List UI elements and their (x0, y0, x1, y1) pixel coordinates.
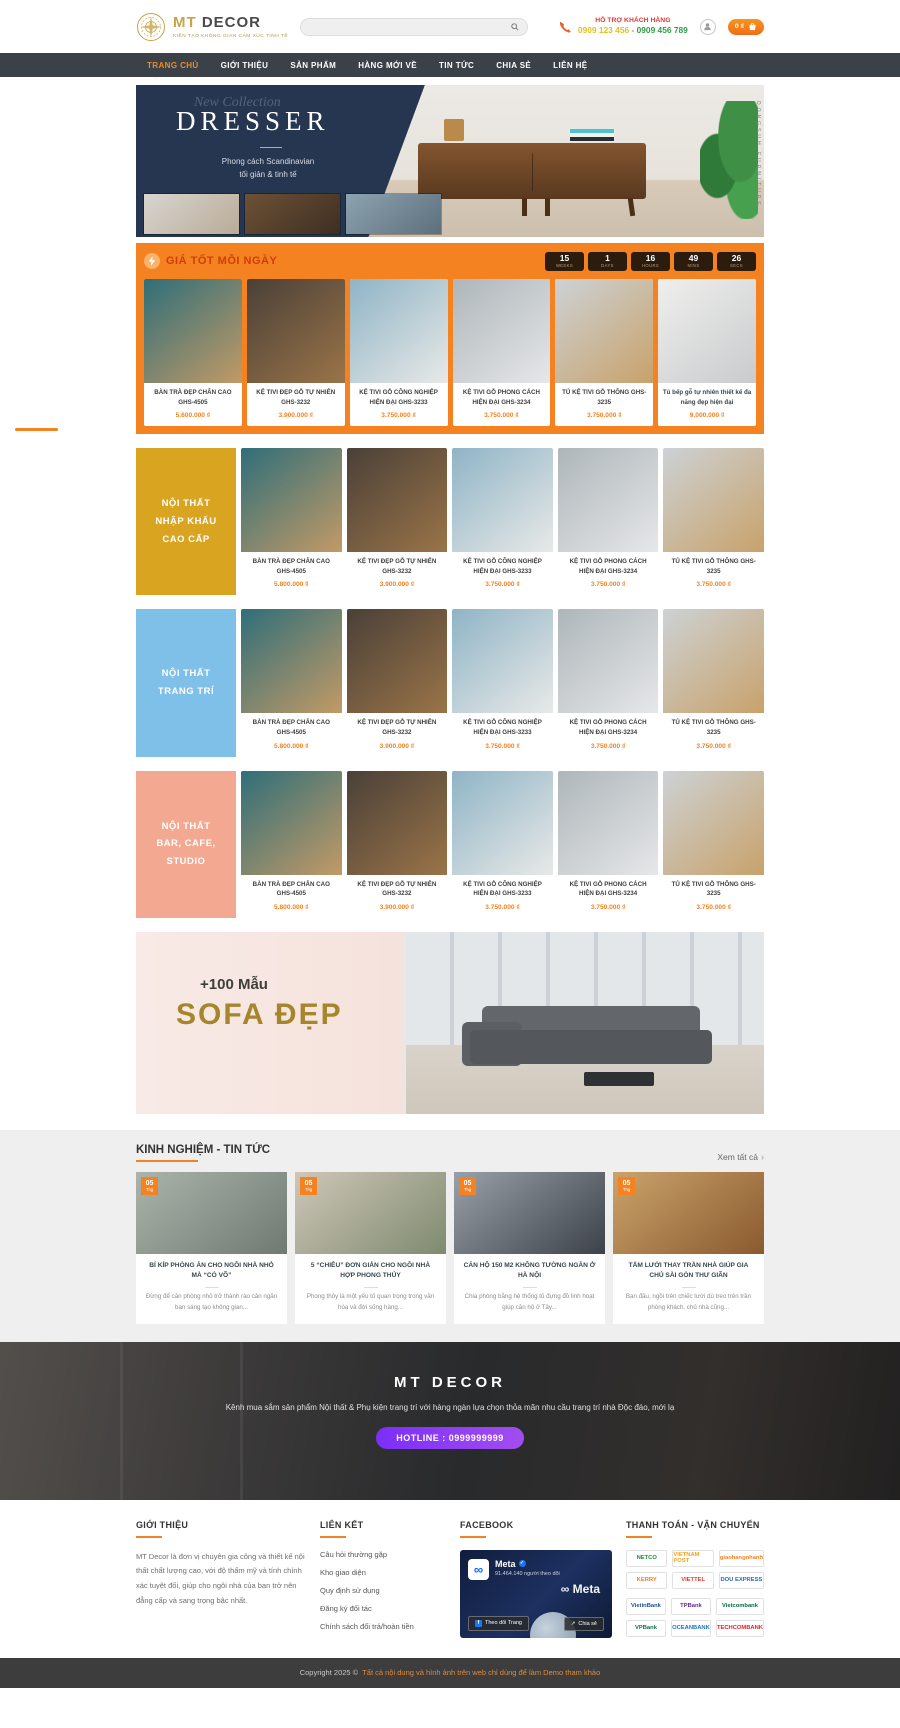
category-banner[interactable]: NỘI THẤTTRANG TRÍ (136, 609, 236, 756)
nav-item[interactable]: SẢN PHẨM (279, 53, 347, 77)
countdown-value: 49 (689, 254, 698, 263)
copyright-bar: Copyright 2025 © Tất cả nội dung và hình… (0, 1658, 900, 1688)
countdown-value: 1 (605, 254, 610, 263)
footer-links: Câu hỏi thường gặpKho giao diệnQuy định … (320, 1550, 446, 1631)
cart-bag-icon (748, 22, 757, 31)
product-name: KỆ TIVI GỖ CÔNG NGHIỆP HIỆN ĐẠI GHS-3233 (452, 552, 553, 576)
share-arrow-icon: ↗ (571, 1621, 576, 1627)
hero-plant-decor (700, 101, 758, 219)
product-price: 5.800.000 ₫ (241, 576, 342, 595)
logo-mt: MT (173, 14, 197, 31)
shipping-brand-logo: giaohangnhanh (719, 1550, 764, 1567)
bank-brand-logo: TPBank (671, 1598, 711, 1615)
countdown-box: 1 DAYS (588, 252, 627, 271)
footer-facebook-heading: FACEBOOK (460, 1520, 612, 1530)
nav-item[interactable]: LIÊN HỆ (542, 53, 598, 77)
product-price: 3.750.000 ₫ (663, 576, 764, 595)
product-card[interactable]: TỦ KỆ TIVI GỖ THÔNG GHS-32353.750.000 ₫ (555, 279, 653, 426)
news-image: 05 Thg (136, 1172, 287, 1254)
logo-decor: DECOR (202, 14, 261, 31)
product-name: TỦ KỆ TIVI GỖ THÔNG GHS-3235 (663, 875, 764, 899)
view-all-link[interactable]: Xem tất cả › (717, 1152, 764, 1162)
shipping-logos: NETCOVIETNAM POSTgiaohangnhanhKERRYVIETT… (626, 1550, 764, 1589)
search-bar[interactable] (300, 18, 528, 36)
meta-watermark: ∞ Meta (561, 1582, 600, 1596)
product-name: KỆ TIVI ĐẸP GỖ TỰ NHIÊN GHS-3232 (347, 875, 448, 899)
hero-thumbnails (144, 194, 441, 234)
product-price: 3.750.000 ₫ (452, 899, 553, 918)
countdown-label: SECS (730, 264, 743, 268)
support-hotline[interactable]: HỖ TRỢ KHÁCH HÀNG 0909 123 456 - 0909 45… (558, 16, 688, 37)
deal-title-text: GIÁ TỐT MỖI NGÀY (166, 255, 277, 267)
site-header: MT DECOR KIẾN TẠO KHÔNG GIAN CẢM XÚC TIN… (0, 0, 900, 53)
product-name: KỆ TIVI GỖ PHONG CÁCH HIỆN ĐẠI GHS-3234 (453, 383, 551, 407)
countdown-label: DAYS (601, 264, 614, 268)
phone-separator: - (631, 25, 634, 35)
brand-banner-title: MT DECOR (0, 1374, 900, 1391)
product-name: KỆ TIVI GỖ PHONG CÁCH HIỆN ĐẠI GHS-3234 (558, 552, 659, 576)
category-products: BÀN TRÀ ĐẸP CHÂN CAO GHS-45055.800.000 ₫… (241, 448, 764, 595)
hero-divider (260, 147, 282, 148)
countdown-label: MINS (687, 264, 699, 268)
cart-amount: 0 ₫ (735, 23, 744, 30)
shipping-brand-logo: VIETTEL (672, 1572, 713, 1589)
phone-icon (558, 20, 572, 34)
bank-brand-logo: Vietcombank (716, 1598, 764, 1615)
brand-banner-description: Kênh mua sắm sản phẩm Nội thất & Phụ kiệ… (225, 1401, 675, 1416)
sofa-shape-seat (470, 1030, 712, 1064)
product-price: 5.600.000 ₫ (144, 407, 242, 426)
news-excerpt: Đừng để căn phòng nhỏ trở thành rào cản … (136, 1292, 287, 1324)
product-price: 3.900.000 ₫ (347, 738, 448, 757)
chevron-right-icon: › (761, 1152, 764, 1162)
product-name: KỆ TIVI GỖ CÔNG NGHIỆP HIỆN ĐẠI GHS-3233 (452, 713, 553, 737)
countdown-box: 15 WEEKS (545, 252, 584, 271)
product-card[interactable]: KỆ TIVI GỖ PHONG CÁCH HIỆN ĐẠI GHS-32343… (558, 771, 659, 918)
product-card[interactable]: KỆ TIVI ĐẸP GỖ TỰ NHIÊN GHS-32323.900.00… (247, 279, 345, 426)
search-icon[interactable] (511, 23, 519, 31)
category-banner[interactable]: NỘI THẤTBAR, CAFE,STUDIO (136, 771, 236, 918)
product-card[interactable]: BÀN TRÀ ĐẸP CHÂN CAO GHS-45055.600.000 ₫ (144, 279, 242, 426)
bank-brand-logo: TECHCOMBANK (716, 1620, 764, 1637)
product-image (144, 279, 242, 383)
footer-heading-underline (136, 1536, 162, 1538)
hotline-button[interactable]: HOTLINE : 0999999999 (376, 1427, 524, 1449)
product-image (453, 279, 551, 383)
footer-heading-underline (460, 1536, 486, 1538)
news-title[interactable]: CĂN HỘ 150 M2 KHÔNG TƯỜNG NGĂN Ở HÀ NỘI (454, 1254, 605, 1282)
account-button[interactable] (700, 19, 716, 35)
hero-vertical-text: DONGSUH FURNITURE (755, 101, 761, 208)
product-price: 5.800.000 ₫ (241, 738, 342, 757)
product-price: 3.750.000 ₫ (350, 407, 448, 426)
product-card[interactable]: Tủ bếp gỗ tự nhiên thiết kế đa năng đẹp … (658, 279, 756, 426)
product-image (558, 609, 659, 713)
deal-title: GIÁ TỐT MỖI NGÀY (144, 253, 277, 269)
category-sections: NỘI THẤTNHẬP KHẨUCAO CẤPBÀN TRÀ ĐẸP CHÂN… (136, 448, 764, 918)
hero-pot-decor (444, 119, 464, 141)
footer-payment-heading: THANH TOÁN - VẬN CHUYỂN (626, 1520, 764, 1530)
product-image (658, 279, 756, 383)
footer-link[interactable]: Kho giao diện (320, 1568, 446, 1577)
nav-item[interactable]: HÀNG MỚI VỀ (347, 53, 428, 77)
news-image: 05 Thg (295, 1172, 446, 1254)
news-card[interactable]: 05 Thg TẤM LƯỚI THAY TRẦN NHÀ GIÚP GIA C… (613, 1172, 764, 1324)
product-image (241, 448, 342, 552)
product-image (241, 609, 342, 713)
hero-subtitle: Phong cách Scandinavian tối giản & tinh … (168, 155, 368, 181)
sofa-promo-banner[interactable]: +100 Mẫu SOFA ĐẸP (136, 932, 764, 1114)
footer-link[interactable]: Đăng ký đối tác (320, 1604, 446, 1613)
category-section: NỘI THẤTBAR, CAFE,STUDIOBÀN TRÀ ĐẸP CHÂN… (136, 771, 764, 918)
product-card[interactable]: KỆ TIVI ĐẸP GỖ TỰ NHIÊN GHS-32323.900.00… (347, 771, 448, 918)
product-price: 3.750.000 ₫ (555, 407, 653, 426)
hero-subtitle-line2: tối giản & tinh tế (168, 168, 368, 181)
footer-link[interactable]: Câu hỏi thường gặp (320, 1550, 446, 1559)
product-price: 3.750.000 ₫ (452, 576, 553, 595)
news-card[interactable]: 05 Thg 5 “CHIÊU” ĐƠN GIẢN CHO NGÔI NHÀ H… (295, 1172, 446, 1324)
logo-tagline: KIẾN TẠO KHÔNG GIAN CẢM XÚC TINH TẾ (173, 34, 288, 39)
product-name: BÀN TRÀ ĐẸP CHÂN CAO GHS-4505 (241, 552, 342, 576)
sofa-coffee-table (584, 1072, 654, 1086)
hero-dresser-photo (418, 143, 646, 199)
product-price: 3.750.000 ₫ (558, 899, 659, 918)
category-section: NỘI THẤTTRANG TRÍBÀN TRÀ ĐẸP CHÂN CAO GH… (136, 609, 764, 756)
deal-countdown: 15 WEEKS 1 DAYS 16 HOURS 49 MINS 26 SECS (545, 252, 756, 271)
nav-item[interactable]: CHIA SẺ (485, 53, 542, 77)
product-image (347, 609, 448, 713)
countdown-value: 16 (646, 254, 655, 263)
product-name: Tủ bếp gỗ tự nhiên thiết kế đa năng đẹp … (658, 383, 756, 407)
shipping-brand-logo: VIETNAM POST (672, 1550, 713, 1567)
bank-brand-logo: VPBank (626, 1620, 666, 1637)
meta-logo-icon: ∞ (468, 1559, 489, 1580)
news-date-badge: 05 Thg (141, 1177, 158, 1195)
news-date-day: 05 (464, 1180, 472, 1187)
deal-products: BÀN TRÀ ĐẸP CHÂN CAO GHS-45055.600.000 ₫… (144, 279, 756, 426)
countdown-box: 26 SECS (717, 252, 756, 271)
slider-accent-dash (15, 428, 58, 431)
nav-item[interactable]: TIN TỨC (428, 53, 485, 77)
site-logo[interactable]: MT DECOR KIẾN TẠO KHÔNG GIAN CẢM XÚC TIN… (136, 12, 288, 42)
user-icon (703, 22, 712, 31)
footer-link[interactable]: Chính sách đổi trả/hoàn tiền (320, 1622, 446, 1631)
news-image: 05 Thg (454, 1172, 605, 1254)
news-date-day: 05 (623, 1180, 631, 1187)
footer-link[interactable]: Quy định sử dụng (320, 1586, 446, 1595)
category-section: NỘI THẤTNHẬP KHẨUCAO CẤPBÀN TRÀ ĐẸP CHÂN… (136, 448, 764, 595)
product-price: 3.750.000 ₫ (452, 738, 553, 757)
product-card[interactable]: KỆ TIVI GỖ CÔNG NGHIỆP HIỆN ĐẠI GHS-3233… (452, 609, 553, 756)
product-image (347, 771, 448, 875)
shipping-brand-logo: DOU EXPRESS (719, 1572, 764, 1589)
news-grid: 05 Thg BÍ KÍP PHÒNG ĂN CHO NGÔI NHÀ NHỎ … (136, 1172, 764, 1324)
copyright-prefix: Copyright 2025 © (300, 1668, 358, 1677)
logo-text: MT DECOR KIẾN TẠO KHÔNG GIAN CẢM XÚC TIN… (173, 14, 288, 39)
hero-books-decor (570, 129, 614, 141)
product-image (452, 771, 553, 875)
product-card[interactable]: KỆ TIVI GỖ CÔNG NGHIỆP HIỆN ĐẠI GHS-3233… (452, 771, 553, 918)
news-card[interactable]: 05 Thg CĂN HỘ 150 M2 KHÔNG TƯỜNG NGĂN Ở … (454, 1172, 605, 1324)
news-excerpt: Chia phòng bằng hệ thống tủ đựng đồ linh… (454, 1292, 605, 1324)
news-section: KINH NGHIỆM - TIN TỨC Xem tất cả › 05 Th… (0, 1130, 900, 1342)
bank-logos: VietinBankTPBankVietcombankVPBankOCEANBA… (626, 1598, 764, 1637)
product-name: KỆ TIVI ĐẸP GỖ TỰ NHIÊN GHS-3232 (347, 713, 448, 737)
news-excerpt: Ban đầu, ngồi trên chiếc lưới dù treo tr… (613, 1292, 764, 1324)
footer-about-text: MT Decor là đơn vị chuyên gia công và th… (136, 1550, 306, 1609)
product-image (452, 448, 553, 552)
share-label: Chia sẻ (578, 1621, 597, 1627)
product-name: KỆ TIVI GỖ CÔNG NGHIỆP HIỆN ĐẠI GHS-3233 (350, 383, 448, 407)
product-card[interactable]: KỆ TIVI GỖ CÔNG NGHIỆP HIỆN ĐẠI GHS-3233… (452, 448, 553, 595)
footer-heading-underline (320, 1536, 346, 1538)
daily-deal-section: GIÁ TỐT MỖI NGÀY 15 WEEKS 1 DAYS 16 HOUR… (136, 243, 764, 434)
countdown-label: HOURS (642, 264, 659, 268)
footer-links-heading: LIÊN KẾT (320, 1520, 446, 1530)
hero-thumbnail[interactable] (245, 194, 340, 234)
hero-title: DRESSER (176, 106, 330, 137)
view-all-label: Xem tất cả (717, 1152, 758, 1162)
news-date-badge: 05 Thg (459, 1177, 476, 1195)
hero-thumbnail[interactable] (346, 194, 441, 234)
countdown-box: 16 HOURS (631, 252, 670, 271)
category-title-line: NỘI THẤT (162, 665, 211, 683)
countdown-box: 49 MINS (674, 252, 713, 271)
news-card[interactable]: 05 Thg BÍ KÍP PHÒNG ĂN CHO NGÔI NHÀ NHỎ … (136, 1172, 287, 1324)
product-image (241, 771, 342, 875)
category-title-line: TRANG TRÍ (158, 683, 214, 701)
cart-button[interactable]: 0 ₫ (728, 19, 764, 35)
search-input[interactable] (309, 23, 505, 30)
brand-banner: MT DECOR Kênh mua sắm sản phẩm Nội thất … (0, 1342, 900, 1500)
news-date-day: 05 (146, 1180, 154, 1187)
support-phone-2[interactable]: 0909 456 789 (637, 25, 688, 35)
facebook-page-widget[interactable]: ∞ Meta✓ 91.464.140 người theo dõi ∞ Meta… (460, 1550, 612, 1638)
news-date-day: 05 (305, 1180, 313, 1187)
product-name: TỦ KỆ TIVI GỖ THÔNG GHS-3235 (663, 552, 764, 576)
product-price: 3.900.000 ₫ (347, 899, 448, 918)
hero-subtitle-line1: Phong cách Scandinavian (168, 155, 368, 168)
product-image (558, 771, 659, 875)
news-divider (205, 1287, 219, 1288)
category-title-line: CAO CẤP (162, 531, 209, 549)
product-card[interactable]: TỦ KỆ TIVI GỖ THÔNG GHS-32353.750.000 ₫ (663, 771, 764, 918)
product-card[interactable]: KỆ TIVI GỖ PHONG CÁCH HIỆN ĐẠI GHS-32343… (558, 448, 659, 595)
product-card[interactable]: KỆ TIVI GỖ PHONG CÁCH HIỆN ĐẠI GHS-32343… (558, 609, 659, 756)
product-image (247, 279, 345, 383)
hero-banner[interactable]: New Collection DRESSER Phong cách Scandi… (136, 85, 764, 237)
product-image (452, 609, 553, 713)
bank-brand-logo: OCEANBANK (671, 1620, 711, 1637)
news-divider (682, 1287, 696, 1288)
countdown-value: 26 (732, 254, 741, 263)
news-excerpt: Phong thủy là một yếu tố quan trọng tron… (295, 1292, 446, 1324)
category-products: BÀN TRÀ ĐẸP CHÂN CAO GHS-45055.800.000 ₫… (241, 609, 764, 756)
product-price: 3.750.000 ₫ (663, 738, 764, 757)
product-price: 3.900.000 ₫ (247, 407, 345, 426)
copyright-text: Tất cả nội dung và hình ảnh trên web chỉ… (362, 1668, 600, 1677)
product-image (663, 771, 764, 875)
news-divider (364, 1287, 378, 1288)
news-divider (523, 1287, 537, 1288)
news-date-badge: 05 Thg (618, 1177, 635, 1195)
facebook-followers: 91.464.140 người theo dõi (495, 1571, 560, 1577)
product-card[interactable]: KỆ TIVI GỖ CÔNG NGHIỆP HIỆN ĐẠI GHS-3233… (350, 279, 448, 426)
countdown-value: 15 (560, 254, 569, 263)
product-card[interactable]: TỦ KỆ TIVI GỖ THÔNG GHS-32353.750.000 ₫ (663, 448, 764, 595)
product-name: KỆ TIVI GỖ PHONG CÁCH HIỆN ĐẠI GHS-3234 (558, 875, 659, 899)
product-name: TỦ KỆ TIVI GỖ THÔNG GHS-3235 (555, 383, 653, 407)
category-products: BÀN TRÀ ĐẸP CHÂN CAO GHS-45055.800.000 ₫… (241, 771, 764, 918)
nav-item[interactable]: TRANG CHỦ (136, 53, 210, 77)
product-price: 5.800.000 ₫ (241, 899, 342, 918)
sofa-count-label: +100 Mẫu (200, 976, 268, 993)
product-card[interactable]: BÀN TRÀ ĐẸP CHÂN CAO GHS-45055.800.000 ₫ (241, 448, 342, 595)
category-title-line: STUDIO (167, 853, 206, 871)
product-image (558, 448, 659, 552)
nav-items: TRANG CHỦGIỚI THIỆUSẢN PHẨMHÀNG MỚI VỀTI… (136, 53, 764, 77)
news-date-month: Thg (464, 1188, 471, 1192)
product-name: BÀN TRÀ ĐẸP CHÂN CAO GHS-4505 (241, 713, 342, 737)
countdown-label: WEEKS (556, 264, 573, 268)
product-price: 3.750.000 ₫ (558, 738, 659, 757)
product-price: 3.750.000 ₫ (663, 899, 764, 918)
verified-badge-icon: ✓ (519, 1560, 526, 1567)
news-image: 05 Thg (613, 1172, 764, 1254)
category-title-line: NHẬP KHẨU (155, 513, 216, 531)
product-image (555, 279, 653, 383)
news-date-month: Thg (305, 1188, 312, 1192)
product-image (663, 609, 764, 713)
product-price: 9.000.000 ₫ (658, 407, 756, 426)
product-name: KỆ TIVI GỖ CÔNG NGHIỆP HIỆN ĐẠI GHS-3233 (452, 875, 553, 899)
product-name: BÀN TRÀ ĐẸP CHÂN CAO GHS-4505 (144, 383, 242, 407)
news-title[interactable]: 5 “CHIÊU” ĐƠN GIẢN CHO NGÔI NHÀ HỢP PHON… (295, 1254, 446, 1282)
site-footer: GIỚI THIỆU MT Decor là đơn vị chuyên gia… (0, 1500, 900, 1656)
main-navigation: TRANG CHỦGIỚI THIỆUSẢN PHẨMHÀNG MỚI VỀTI… (0, 53, 900, 77)
product-image (663, 448, 764, 552)
news-date-month: Thg (623, 1188, 630, 1192)
news-title[interactable]: TẤM LƯỚI THAY TRẦN NHÀ GIÚP GIA CHỦ SÀI … (613, 1254, 764, 1282)
product-name: KỆ TIVI ĐẸP GỖ TỰ NHIÊN GHS-3232 (247, 383, 345, 407)
product-image (350, 279, 448, 383)
facebook-page-name: Meta (495, 1559, 516, 1569)
news-date-badge: 05 Thg (300, 1177, 317, 1195)
product-card[interactable]: KỆ TIVI GỖ PHONG CÁCH HIỆN ĐẠI GHS-32343… (453, 279, 551, 426)
product-card[interactable]: KỆ TIVI ĐẸP GỖ TỰ NHIÊN GHS-32323.900.00… (347, 448, 448, 595)
lightning-bolt-icon (144, 253, 160, 269)
bank-brand-logo: VietinBank (626, 1598, 666, 1615)
product-card[interactable]: BÀN TRÀ ĐẸP CHÂN CAO GHS-45055.800.000 ₫ (241, 609, 342, 756)
product-card[interactable]: BÀN TRÀ ĐẸP CHÂN CAO GHS-45055.800.000 ₫ (241, 771, 342, 918)
product-name: KỆ TIVI ĐẸP GỖ TỰ NHIÊN GHS-3232 (347, 552, 448, 576)
facebook-f-icon: f (475, 1620, 482, 1627)
product-price: 3.900.000 ₫ (347, 576, 448, 595)
news-title[interactable]: BÍ KÍP PHÒNG ĂN CHO NGÔI NHÀ NHỎ MÀ “CÓ … (136, 1254, 287, 1282)
nav-item[interactable]: GIỚI THIỆU (210, 53, 280, 77)
product-image (347, 448, 448, 552)
category-title-line: NỘI THẤT (162, 495, 211, 513)
shipping-brand-logo: KERRY (626, 1572, 667, 1589)
product-card[interactable]: KỆ TIVI ĐẸP GỖ TỰ NHIÊN GHS-32323.900.00… (347, 609, 448, 756)
product-card[interactable]: TỦ KỆ TIVI GỖ THÔNG GHS-32353.750.000 ₫ (663, 609, 764, 756)
category-title-line: BAR, CAFE, (156, 835, 215, 853)
news-date-month: Thg (146, 1188, 153, 1192)
facebook-follow-button[interactable]: fTheo dõi Trang (468, 1616, 529, 1631)
news-section-title: KINH NGHIỆM - TIN TỨC (136, 1144, 270, 1162)
category-banner[interactable]: NỘI THẤTNHẬP KHẨUCAO CẤP (136, 448, 236, 595)
product-name: BÀN TRÀ ĐẸP CHÂN CAO GHS-4505 (241, 875, 342, 899)
footer-heading-underline (626, 1536, 652, 1538)
product-price: 3.750.000 ₫ (558, 576, 659, 595)
sofa-title: SOFA ĐẸP (176, 998, 343, 1032)
facebook-share-button[interactable]: ↗Chia sẻ (564, 1617, 604, 1631)
support-label: HỖ TRỢ KHÁCH HÀNG (578, 16, 688, 26)
product-price: 3.750.000 ₫ (453, 407, 551, 426)
logo-mandala-icon (136, 12, 166, 42)
product-name: TỦ KỆ TIVI GỖ THÔNG GHS-3235 (663, 713, 764, 737)
hero-thumbnail[interactable] (144, 194, 239, 234)
footer-about-heading: GIỚI THIỆU (136, 1520, 306, 1530)
category-title-line: NỘI THẤT (162, 818, 211, 836)
follow-label: Theo dõi Trang (485, 1620, 522, 1626)
product-name: KỆ TIVI GỖ PHONG CÁCH HIỆN ĐẠI GHS-3234 (558, 713, 659, 737)
support-phone-1[interactable]: 0909 123 456 (578, 25, 629, 35)
shipping-brand-logo: NETCO (626, 1550, 667, 1567)
